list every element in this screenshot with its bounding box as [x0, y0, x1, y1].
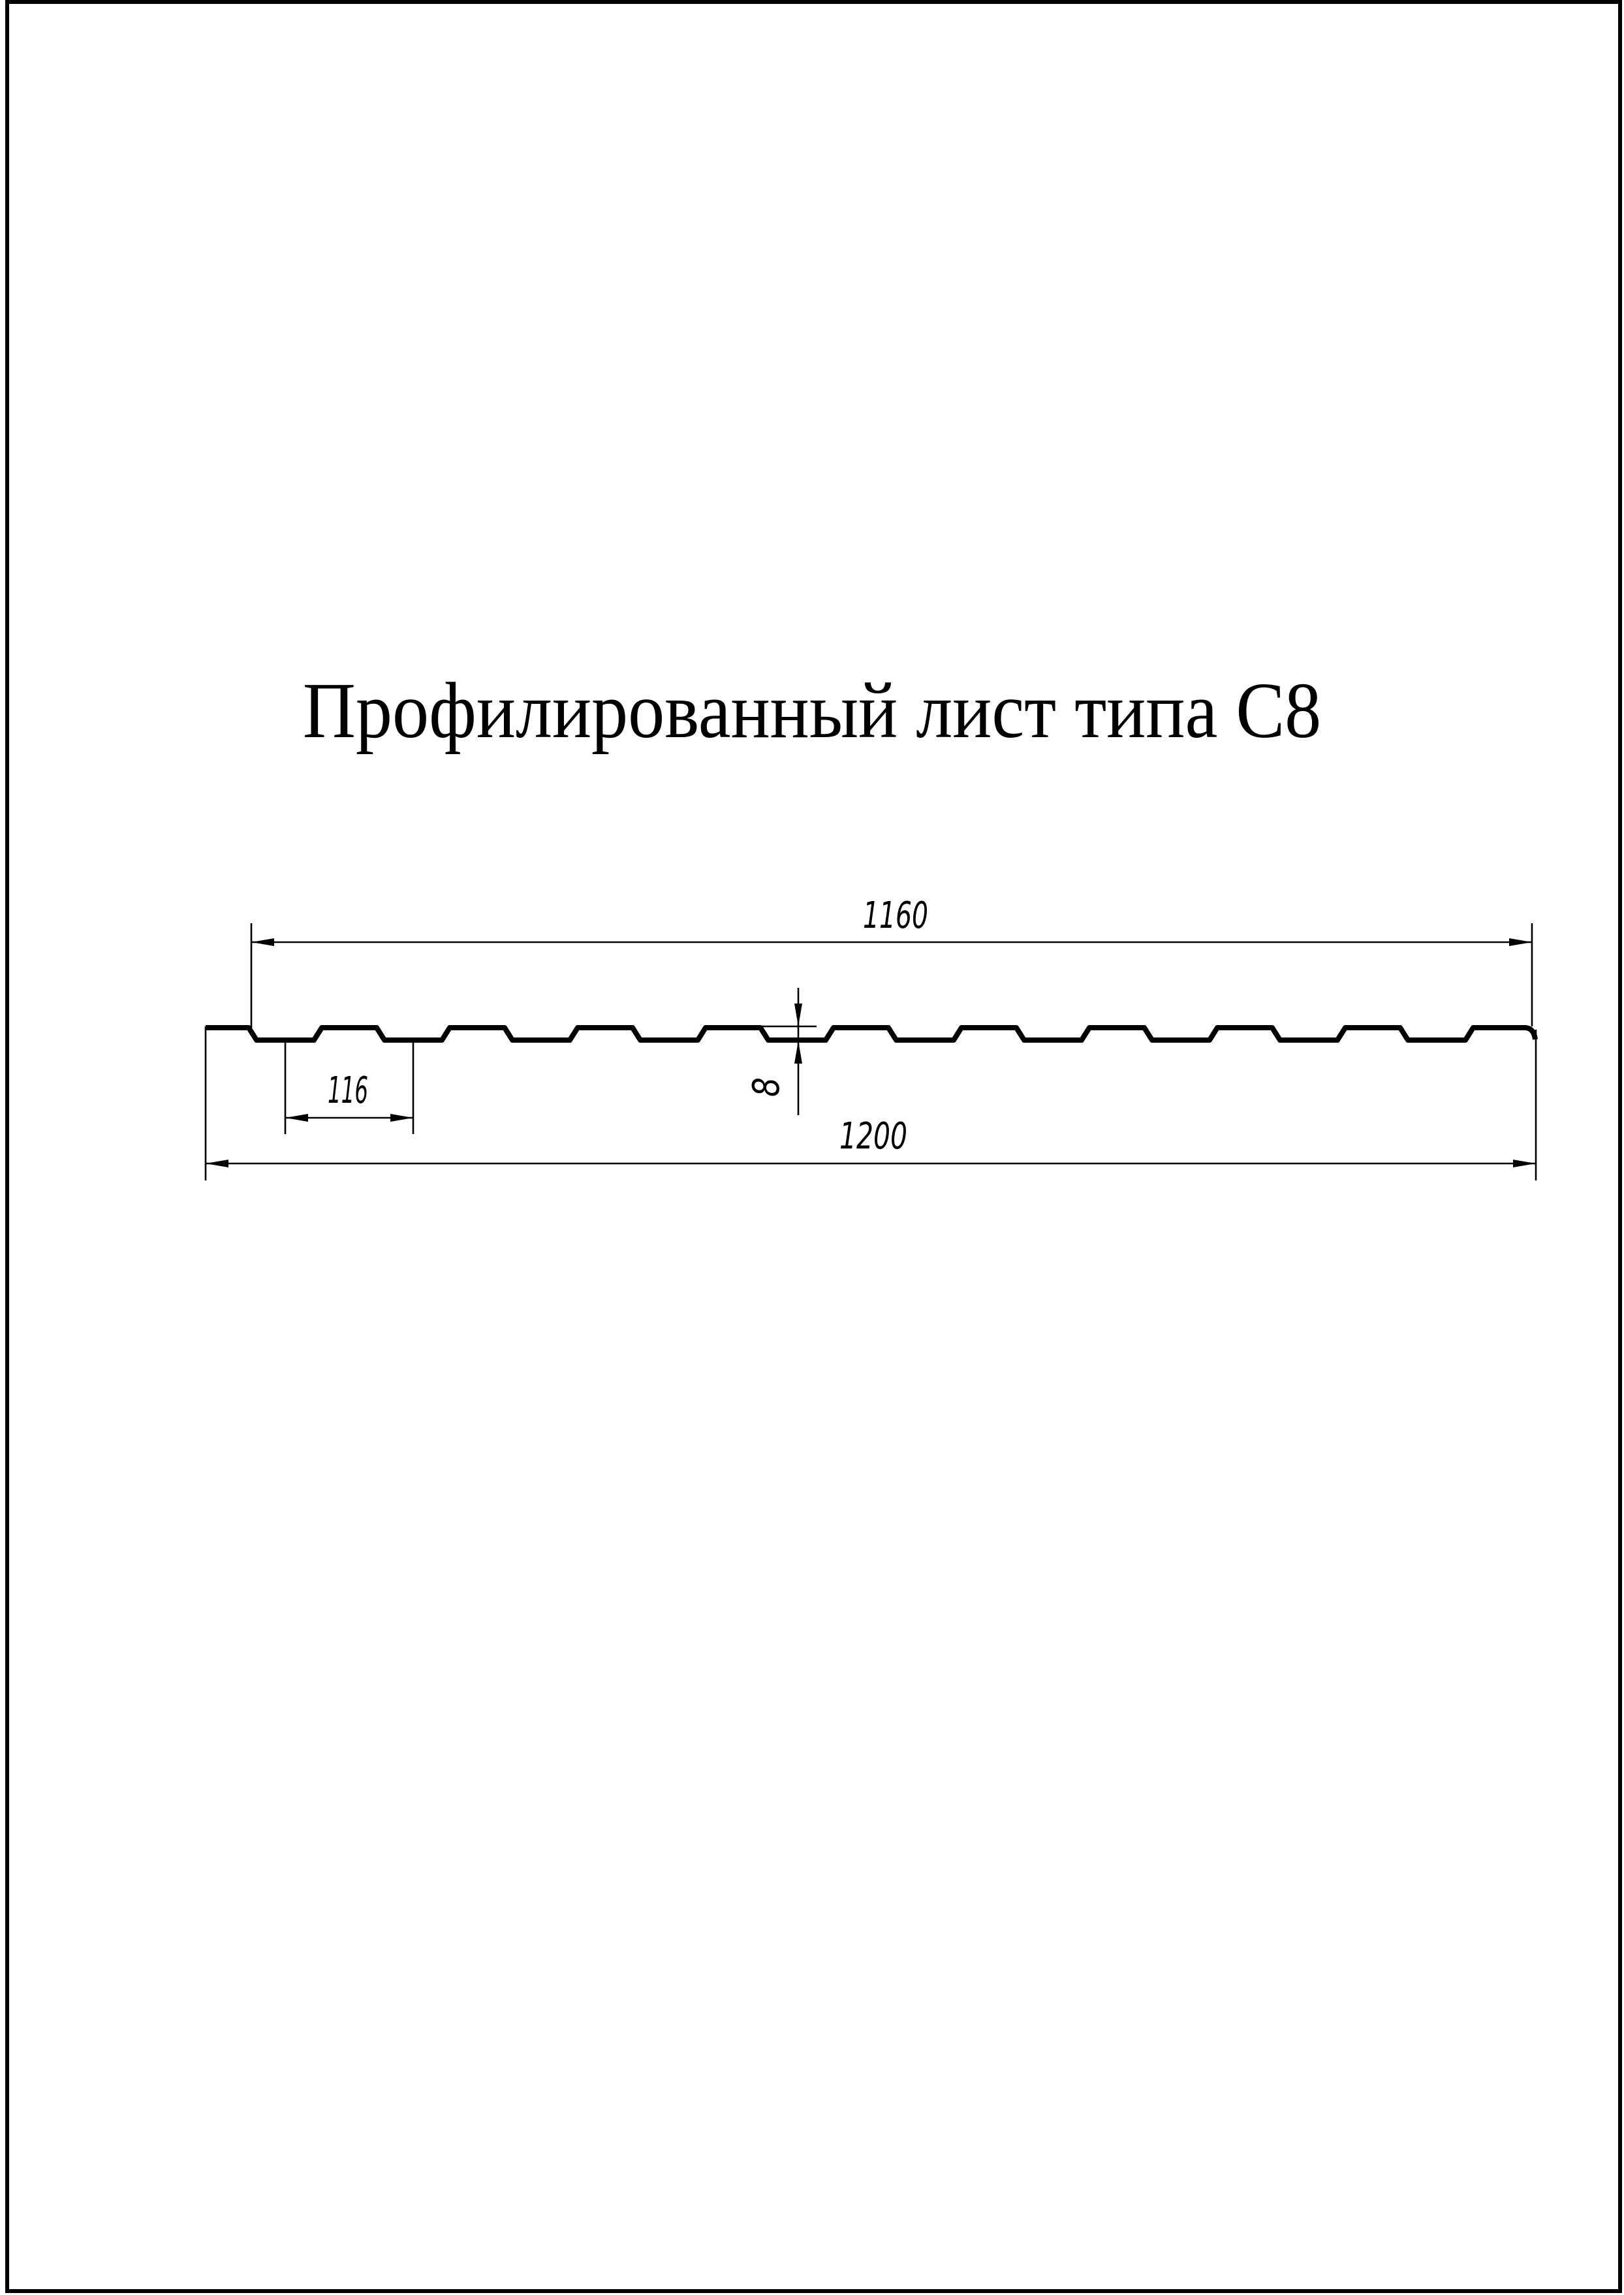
- dim-arrow-right: [1509, 938, 1532, 946]
- dim-value-overall-width: 1200: [839, 1115, 907, 1158]
- technical-drawing: 1160 116 8 1200: [0, 0, 1624, 2295]
- dim-value-working-width: 1160: [863, 894, 928, 937]
- dim-arrow-left: [285, 1114, 308, 1122]
- dim-arrow-left: [251, 938, 274, 946]
- drawing-sheet: Профилированный лист типа С8 1160 116: [0, 0, 1624, 2295]
- dim-arrow-down: [794, 1004, 802, 1026]
- dimension-rib-pitch: 116: [285, 1039, 413, 1134]
- dimension-overall-width: 1200: [206, 1026, 1536, 1180]
- dim-arrow-right: [1513, 1160, 1536, 1167]
- profile-outline: [206, 1028, 1535, 1040]
- dimension-profile-height: 8: [745, 988, 817, 1115]
- dim-value-rib-pitch: 116: [328, 1069, 368, 1112]
- dimension-working-width: 1160: [251, 894, 1532, 1030]
- dim-arrow-left: [206, 1160, 228, 1167]
- dim-value-profile-height: 8: [745, 1077, 788, 1097]
- dim-arrow-right: [390, 1114, 413, 1122]
- dim-arrow-up: [794, 1041, 802, 1064]
